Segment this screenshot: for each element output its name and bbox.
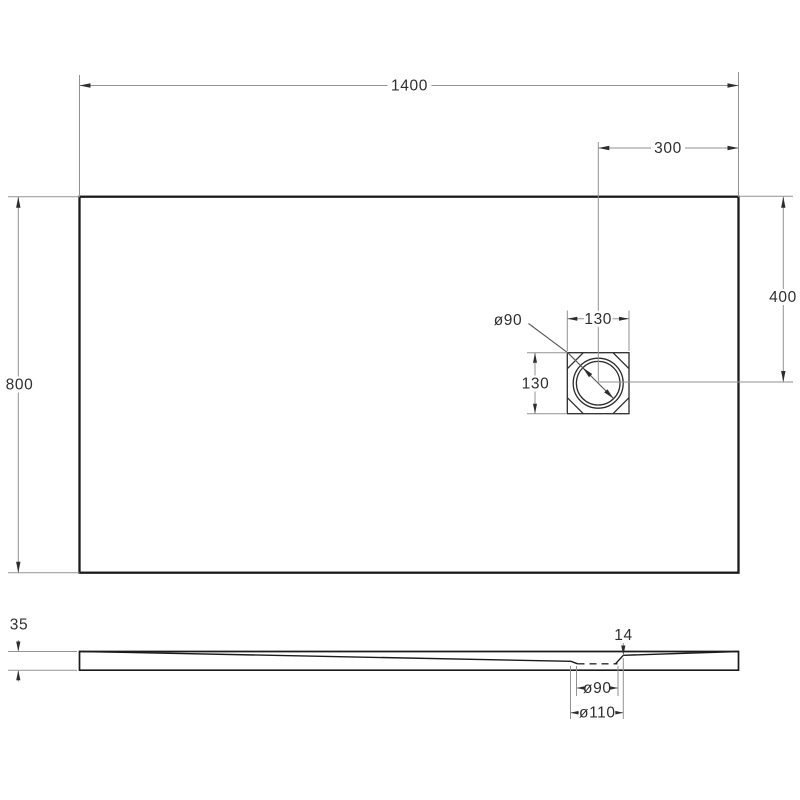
dim-800-label: 800 (3, 377, 37, 394)
svg-text:35: 35 (10, 617, 28, 634)
arrow-90-right (610, 686, 618, 690)
arrow-1400-left (80, 83, 91, 87)
dim-130-height-label: 130 (521, 376, 550, 393)
dim-diameter-110-side-label: ø110 (579, 705, 616, 722)
arrow-90-left (577, 686, 585, 690)
arrow-110-right (615, 711, 623, 715)
svg-text:ø110: ø110 (579, 705, 616, 722)
arrow-400-top (781, 197, 785, 208)
dim-400-label: 400 (766, 289, 800, 306)
technical-drawing-shower-tray: 1400 300 400 800 130 130 ø90 35 (0, 0, 800, 800)
dim-1400-label: 1400 (388, 78, 432, 95)
tray-outline-top-view (80, 197, 739, 573)
dim-300-label: 300 (651, 140, 685, 157)
dim-35-label: 35 (8, 617, 30, 634)
svg-text:ø90: ø90 (494, 312, 523, 329)
dim-diameter-90-top-label: ø90 (491, 312, 525, 329)
svg-text:130: 130 (522, 376, 550, 393)
arrow-800-top (16, 197, 20, 208)
svg-text:400: 400 (769, 289, 797, 306)
svg-text:800: 800 (6, 377, 34, 394)
arrow-110-left (571, 711, 579, 715)
arrow-1400-right (728, 83, 739, 87)
svg-text:130: 130 (584, 311, 612, 328)
arrow-400-bottom (781, 371, 785, 382)
dim-14-label: 14 (614, 627, 634, 644)
svg-text:300: 300 (654, 140, 682, 157)
arrow-300-right (728, 146, 739, 150)
drawing-canvas: 1400 300 400 800 130 130 ø90 35 (0, 0, 800, 800)
arrow-300-left (598, 146, 609, 150)
dim-130-width-label: 130 (584, 311, 613, 328)
side-view (8, 640, 739, 719)
dim-diameter-90-side-label: ø90 (583, 680, 612, 697)
arrow-35-top (16, 642, 20, 652)
svg-text:14: 14 (614, 627, 632, 644)
svg-text:ø90: ø90 (583, 680, 612, 697)
arrow-35-bottom (16, 670, 20, 680)
arrow-800-bottom (16, 562, 20, 573)
svg-text:1400: 1400 (391, 78, 428, 95)
